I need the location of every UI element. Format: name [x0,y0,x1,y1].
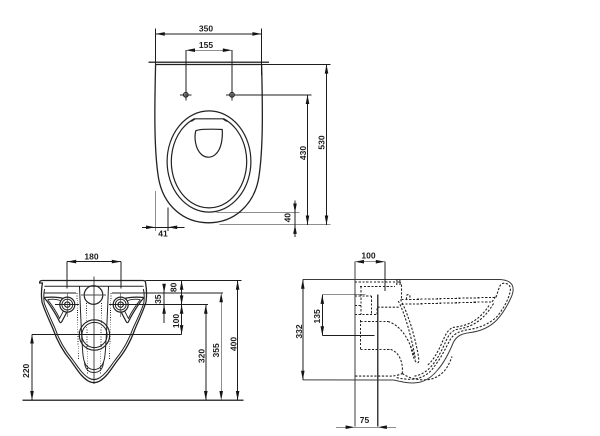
svg-text:41: 41 [158,228,168,238]
svg-text:135: 135 [312,309,322,323]
svg-text:40: 40 [283,213,293,223]
svg-text:100: 100 [361,251,375,261]
svg-text:400: 400 [228,337,238,351]
svg-text:35: 35 [153,294,163,304]
svg-text:355: 355 [211,343,221,357]
svg-text:320: 320 [197,349,207,363]
svg-text:430: 430 [298,146,308,160]
svg-text:180: 180 [84,251,98,261]
svg-text:75: 75 [360,415,370,425]
svg-text:80: 80 [169,282,179,292]
svg-text:155: 155 [199,40,213,50]
svg-text:350: 350 [199,23,213,33]
svg-text:530: 530 [317,135,327,149]
svg-text:100: 100 [171,314,181,328]
svg-text:220: 220 [21,363,31,377]
svg-text:332: 332 [294,324,304,338]
